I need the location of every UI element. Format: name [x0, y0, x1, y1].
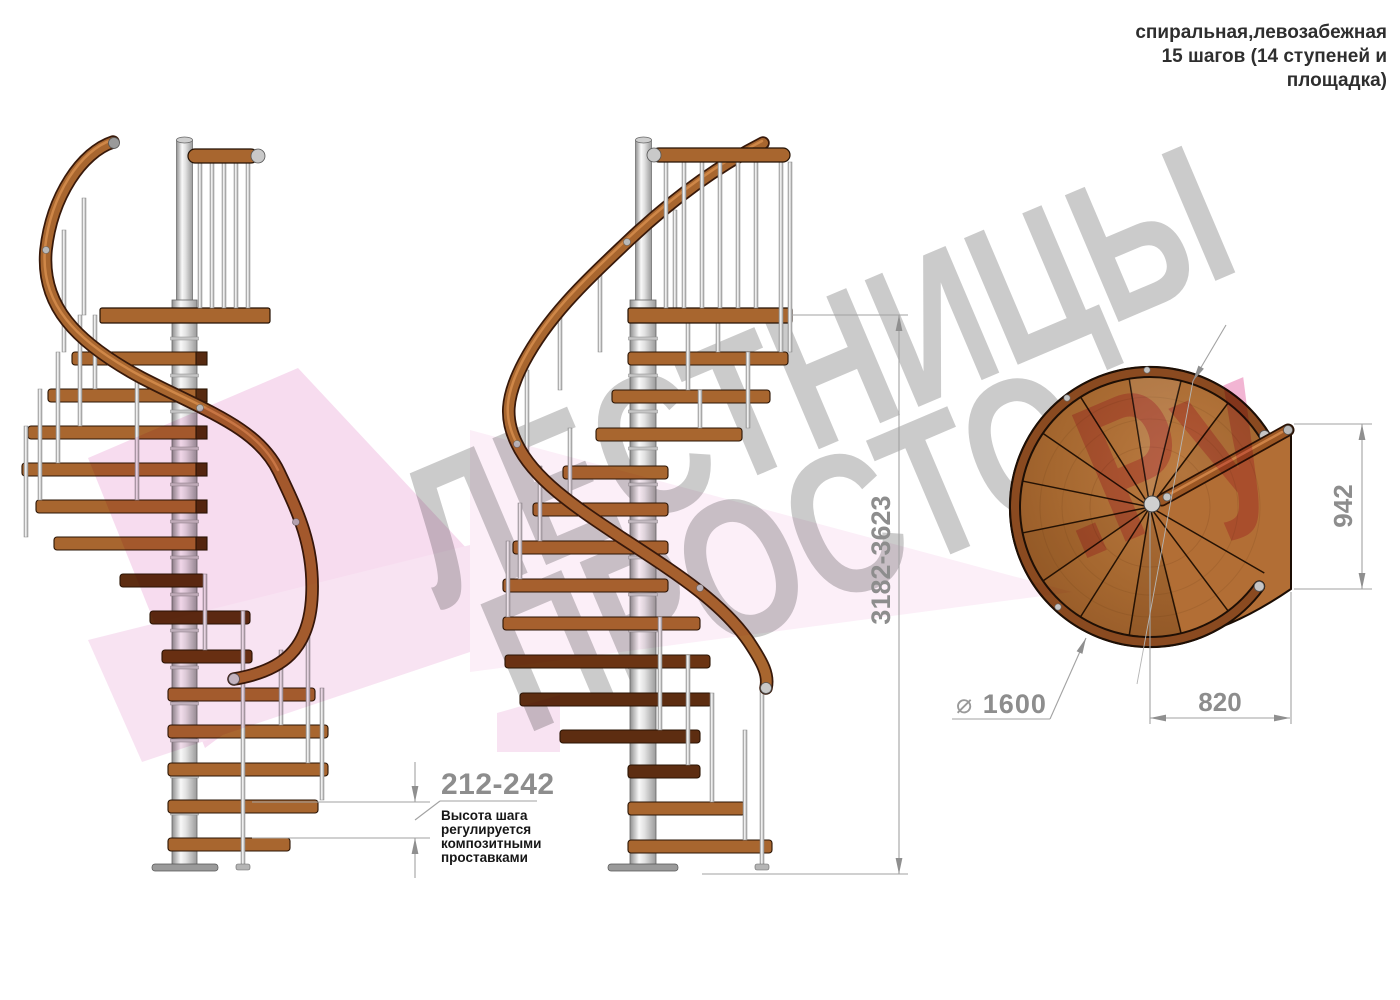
header-line-3: площадка)	[1287, 70, 1387, 91]
total-height-value: 3182-3623	[866, 495, 896, 624]
left-stair-post-cap	[177, 137, 193, 143]
left-stair-baluster-foot	[236, 864, 250, 870]
note-line-1: Высота шага	[441, 808, 528, 823]
drawing-canvas: ЛЕСТНИЦЫ ПРОСТО	[0, 0, 1400, 1000]
middle-stair-landing-platform	[628, 308, 792, 323]
note-line-2: регулируется	[441, 822, 531, 837]
left-stair-base-plate	[152, 864, 218, 871]
note-line-3: композитными	[441, 836, 541, 851]
landing-width-value: 942	[1328, 484, 1358, 527]
diameter-label: ⌀ 1600	[956, 689, 1047, 719]
left-stair-landing-platform	[100, 308, 270, 323]
step-height-value: 212-242	[441, 768, 555, 801]
header-line-2: 15 шагов (14 ступеней и	[1162, 46, 1387, 67]
left-stair-top-post	[177, 140, 193, 312]
landing-depth-value: 820	[1198, 687, 1241, 717]
middle-stair-base-plate	[608, 864, 678, 871]
middle-stair-post-cap	[636, 137, 652, 143]
step-height-note: Высота шага регулируется композитными пр…	[441, 808, 541, 865]
diameter-value: 1600	[983, 689, 1047, 719]
staircase-technical-drawing: ЛЕСТНИЦЫ ПРОСТО	[0, 0, 1400, 1000]
middle-stair-baluster-foot	[755, 864, 769, 870]
note-line-4: проставками	[441, 850, 528, 865]
diameter-symbol: ⌀	[956, 689, 972, 719]
header-line-1: спиральная,левозабежная	[1135, 22, 1387, 43]
